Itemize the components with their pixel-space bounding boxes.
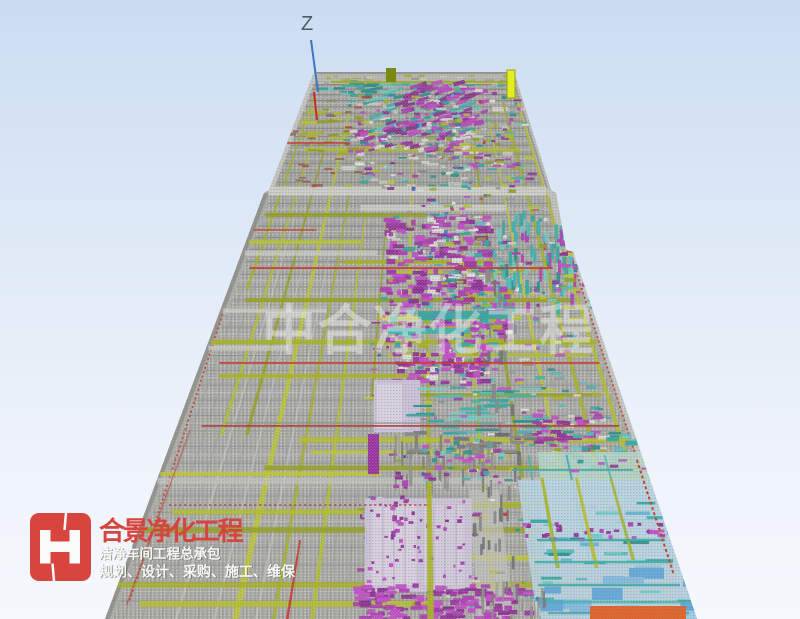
svg-text:中合净化工程: 中合净化工程 xyxy=(262,301,595,361)
svg-text:合景净化工程: 合景净化工程 xyxy=(99,516,244,546)
svg-text:Z: Z xyxy=(301,13,313,35)
svg-text:洁净车间工程总承包: 洁净车间工程总承包 xyxy=(99,546,221,562)
svg-text:规划、设计、采购、施工、维保: 规划、设计、采购、施工、维保 xyxy=(99,564,296,580)
